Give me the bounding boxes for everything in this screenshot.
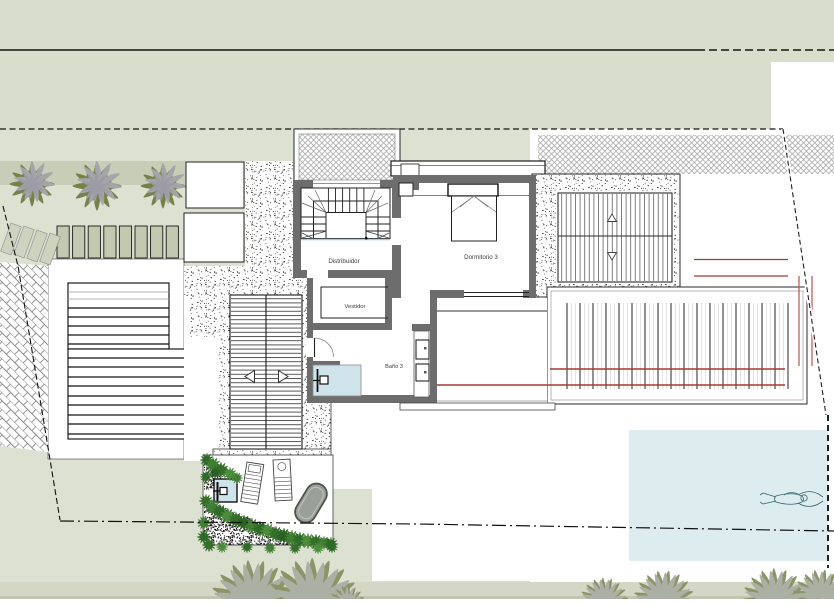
svg-text:Vestidor: Vestidor [345,304,366,310]
svg-text:Baño 3: Baño 3 [385,364,403,370]
svg-text:Distribuidor: Distribuidor [328,258,359,265]
svg-text:Dormitorio 3: Dormitorio 3 [464,254,498,261]
